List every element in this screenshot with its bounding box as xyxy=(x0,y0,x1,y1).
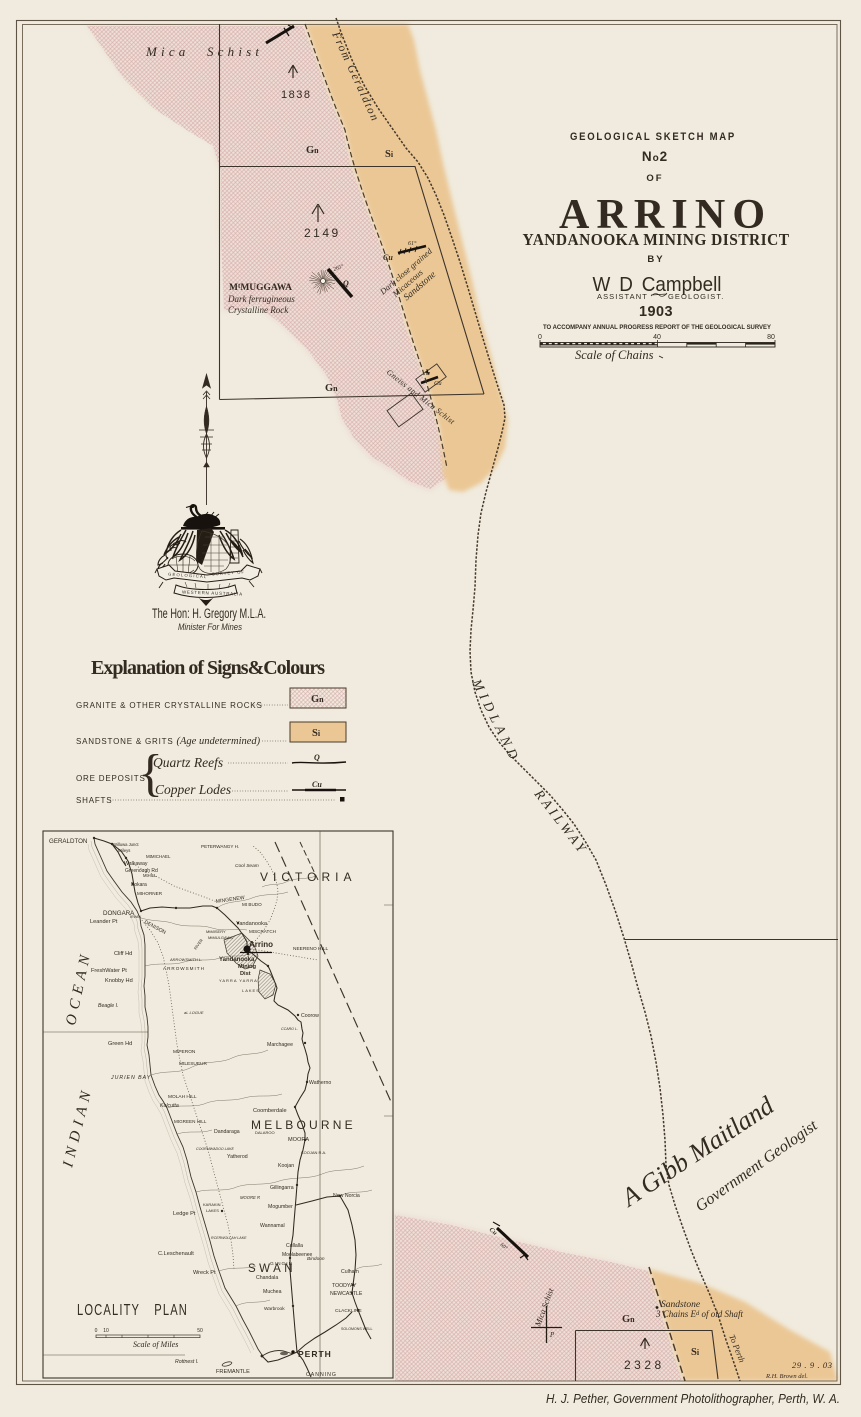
svg-text:The Hon: H. Gregory M.L.A.: The Hon: H. Gregory M.L.A. xyxy=(152,606,266,621)
svg-text:NEWCASTLE: NEWCASTLE xyxy=(330,1291,363,1297)
svg-text:50: 50 xyxy=(197,1328,203,1334)
svg-text:40: 40 xyxy=(653,334,661,341)
svg-text:Cullalla: Cullalla xyxy=(286,1243,303,1249)
svg-text:Copper Lodes: Copper Lodes xyxy=(155,782,231,797)
svg-text:Warbrook: Warbrook xyxy=(264,1306,285,1312)
svg-text:LOCALITY PLAN: LOCALITY PLAN xyxy=(77,1302,188,1319)
svg-text:ARROWSMITH: ARROWSMITH xyxy=(163,966,205,971)
svg-text:OF: OF xyxy=(646,173,663,184)
svg-text:Gn: Gn xyxy=(306,145,319,156)
svg-text:MtSCRATCH: MtSCRATCH xyxy=(249,929,276,934)
svg-text:R.H. Brown del.: R.H. Brown del. xyxy=(765,1373,808,1380)
svg-text:KARAKIN: KARAKIN xyxy=(203,1202,221,1207)
svg-text:Gn: Gn xyxy=(325,383,338,394)
svg-text:Gn: Gn xyxy=(311,694,324,705)
svg-text:Gn: Gn xyxy=(622,1314,635,1325)
svg-text:MtGREEN HILL: MtGREEN HILL xyxy=(174,1119,207,1124)
svg-text:Bindoon: Bindoon xyxy=(307,1256,325,1262)
svg-text:Mining: Mining xyxy=(238,964,257,970)
svg-text:MtHORNER: MtHORNER xyxy=(137,891,163,896)
svg-text:Watherno: Watherno xyxy=(309,1080,331,1086)
svg-text:ARROWSMITH L.: ARROWSMITH L. xyxy=(169,957,202,962)
svg-text:RCERWOLLAH LAKE: RCERWOLLAH LAKE xyxy=(211,1236,247,1240)
svg-text:SWAN: SWAN xyxy=(248,1263,296,1275)
svg-text:Wannamal: Wannamal xyxy=(260,1223,285,1229)
svg-text:Cool Seam: Cool Seam xyxy=(235,863,259,869)
svg-text:Dark ferrugineous: Dark ferrugineous xyxy=(227,294,295,304)
svg-text:61°: 61° xyxy=(408,240,417,247)
svg-text:80: 80 xyxy=(767,334,775,341)
svg-text:29 . 9 . 03: 29 . 9 . 03 xyxy=(792,1360,833,1370)
svg-text:ASSISTANT: ASSISTANT xyxy=(597,292,648,301)
svg-text:Ledge Pt: Ledge Pt xyxy=(173,1211,196,1217)
svg-text:COORMWADOO LAKE: COORMWADOO LAKE xyxy=(196,1147,234,1151)
svg-text:P: P xyxy=(549,1331,555,1339)
svg-text:1838: 1838 xyxy=(281,89,311,101)
svg-text:Green Hd: Green Hd xyxy=(108,1041,132,1047)
svg-text:MtMULGAWA: MtMULGAWA xyxy=(208,935,233,940)
svg-text:MtMISERY: MtMISERY xyxy=(206,929,226,934)
svg-text:3 Chains Ed of old Shaft: 3 Chains Ed of old Shaft xyxy=(655,1309,744,1319)
svg-text:KOOJAN R.A.: KOOJAN R.A. xyxy=(301,1150,326,1155)
svg-text:Cu: Cu xyxy=(434,380,442,387)
svg-text:Knobby Hd: Knobby Hd xyxy=(105,978,133,984)
svg-text:2149: 2149 xyxy=(304,226,341,240)
svg-text:GERALDTON: GERALDTON xyxy=(49,838,87,845)
svg-text:Beagle I.: Beagle I. xyxy=(98,1003,118,1009)
svg-text:Yatherod: Yatherod xyxy=(227,1154,248,1160)
svg-text:Yandanooka: Yandanooka xyxy=(236,921,268,927)
svg-text:YANDANOOKA MINING DISTRICT: YANDANOOKA MINING DISTRICT xyxy=(523,230,790,249)
svg-text:1903: 1903 xyxy=(639,303,673,320)
svg-text:H. J. Pether, Government Pho: H. J. Pether, Government Photolithograph… xyxy=(546,1391,840,1406)
svg-text:Coomberdale: Coomberdale xyxy=(253,1108,287,1114)
svg-text:BY: BY xyxy=(647,254,664,265)
svg-text:Culham: Culham xyxy=(341,1269,359,1275)
svg-text:MOORE R: MOORE R xyxy=(240,1195,260,1200)
svg-text:aL LOGUE: aL LOGUE xyxy=(184,1010,204,1015)
svg-text:GEOLOGICAL SKETCH MAP: GEOLOGICAL SKETCH MAP xyxy=(570,131,736,143)
svg-text:10: 10 xyxy=(103,1328,109,1334)
svg-text:NEERENO HILL: NEERENO HILL xyxy=(293,946,329,952)
svg-text:Dandaraga: Dandaraga xyxy=(214,1129,240,1135)
svg-text:Muchea: Muchea xyxy=(263,1289,282,1295)
svg-text:MOLAH HILL: MOLAH HILL xyxy=(168,1094,197,1100)
svg-text:Quartz Reefs: Quartz Reefs xyxy=(153,755,223,770)
svg-text:IRWIN: IRWIN xyxy=(130,915,141,919)
svg-text:Cliff Hd: Cliff Hd xyxy=(114,951,132,957)
svg-text:Rottnest I.: Rottnest I. xyxy=(175,1359,199,1365)
svg-text:JURIEN BAY: JURIEN BAY xyxy=(110,1075,151,1081)
svg-text:Gillingarra: Gillingarra xyxy=(270,1185,294,1191)
svg-text:Crystalline Rock: Crystalline Rock xyxy=(228,305,289,315)
svg-text:Leander Pt: Leander Pt xyxy=(90,919,118,925)
svg-text:Chandala: Chandala xyxy=(256,1275,278,1281)
svg-text:Q: Q xyxy=(343,279,349,288)
svg-text:Mt BUDO: Mt BUDO xyxy=(242,902,262,907)
svg-text:Dist: Dist xyxy=(240,971,251,977)
svg-text:MtLESUEUR: MtLESUEUR xyxy=(179,1061,208,1067)
svg-text:Marchagee: Marchagee xyxy=(267,1042,293,1048)
svg-text:Mogumber: Mogumber xyxy=(268,1204,293,1210)
svg-text:Scale of Miles: Scale of Miles xyxy=(133,1340,178,1349)
svg-text:Cu: Cu xyxy=(312,780,322,789)
svg-text:Willuwa Junct: Willuwa Junct xyxy=(113,842,139,847)
svg-text:FREMANTLE: FREMANTLE xyxy=(216,1369,250,1375)
svg-text:C.Leschenault: C.Leschenault xyxy=(158,1251,194,1257)
svg-text:CCARO L.: CCARO L. xyxy=(281,1027,298,1031)
svg-text:Walkaway: Walkaway xyxy=(124,861,148,867)
svg-text:LAKES: LAKES xyxy=(242,988,260,993)
svg-text:VICTORIA: VICTORIA xyxy=(260,870,356,884)
svg-text:PETERWANGY H.: PETERWANGY H. xyxy=(201,844,239,849)
svg-text:Wreck Pt: Wreck Pt xyxy=(193,1270,216,1276)
svg-text:MELBOURNE: MELBOURNE xyxy=(251,1118,356,1132)
svg-text:0: 0 xyxy=(538,334,542,341)
svg-text:GRANITE & OTHER CRYSTALLINE: GRANITE & OTHER CRYSTALLINE ROCKS xyxy=(76,701,263,710)
svg-text:Arrino: Arrino xyxy=(249,940,273,949)
svg-text:Koojan: Koojan xyxy=(278,1163,294,1169)
svg-text:PERTH: PERTH xyxy=(298,1349,332,1359)
svg-text:Coorow: Coorow xyxy=(301,1013,319,1019)
svg-text:0: 0 xyxy=(95,1328,98,1334)
svg-text:Si: Si xyxy=(691,1347,700,1358)
svg-text:LAKES: LAKES xyxy=(206,1208,219,1213)
svg-text:FreshWater Pt: FreshWater Pt xyxy=(91,968,127,974)
svg-text:SANDSTONE & GRITS (Age undet: SANDSTONE & GRITS (Age undetermined) xyxy=(76,736,261,747)
svg-text:ORE DEPOSITS: ORE DEPOSITS xyxy=(76,774,146,783)
svg-text:Mica Schist: Mica Schist xyxy=(145,44,263,59)
svg-text:MtPERON: MtPERON xyxy=(173,1049,196,1055)
svg-text:YARRA YARRA: YARRA YARRA xyxy=(219,978,258,983)
svg-text:Yandanooka: Yandanooka xyxy=(219,957,255,963)
svg-text:Explanation of Signs&Colours: Explanation of Signs&Colours xyxy=(91,657,325,679)
svg-text:MtMICHAEL: MtMICHAEL xyxy=(146,854,171,859)
svg-text:New Norcia: New Norcia xyxy=(333,1193,360,1199)
svg-text:CANNING: CANNING xyxy=(306,1372,337,1378)
svg-text:Scale of Chains: Scale of Chains xyxy=(575,348,654,362)
svg-text:Si: Si xyxy=(385,149,394,160)
svg-text:2328: 2328 xyxy=(624,1358,665,1372)
svg-text:SHAFTS: SHAFTS xyxy=(76,796,112,805)
svg-text:TO ACCOMPANY ANNUAL PROGRES: TO ACCOMPANY ANNUAL PROGRESS REPORT OF T… xyxy=(543,325,771,331)
svg-text:Q: Q xyxy=(314,753,320,762)
svg-text:MtHILL: MtHILL xyxy=(143,873,157,878)
svg-text:GEOLOGIST.: GEOLOGIST. xyxy=(668,292,724,301)
svg-text:Minister For Mines: Minister For Mines xyxy=(178,622,242,633)
svg-text:SOLOMONS WELL: SOLOMONS WELL xyxy=(341,1327,373,1331)
svg-text:Kalcutta: Kalcutta xyxy=(160,1103,179,1109)
svg-text:Cu: Cu xyxy=(383,253,393,262)
svg-text:Wileys: Wileys xyxy=(118,848,130,853)
svg-text:Si: Si xyxy=(312,728,321,739)
